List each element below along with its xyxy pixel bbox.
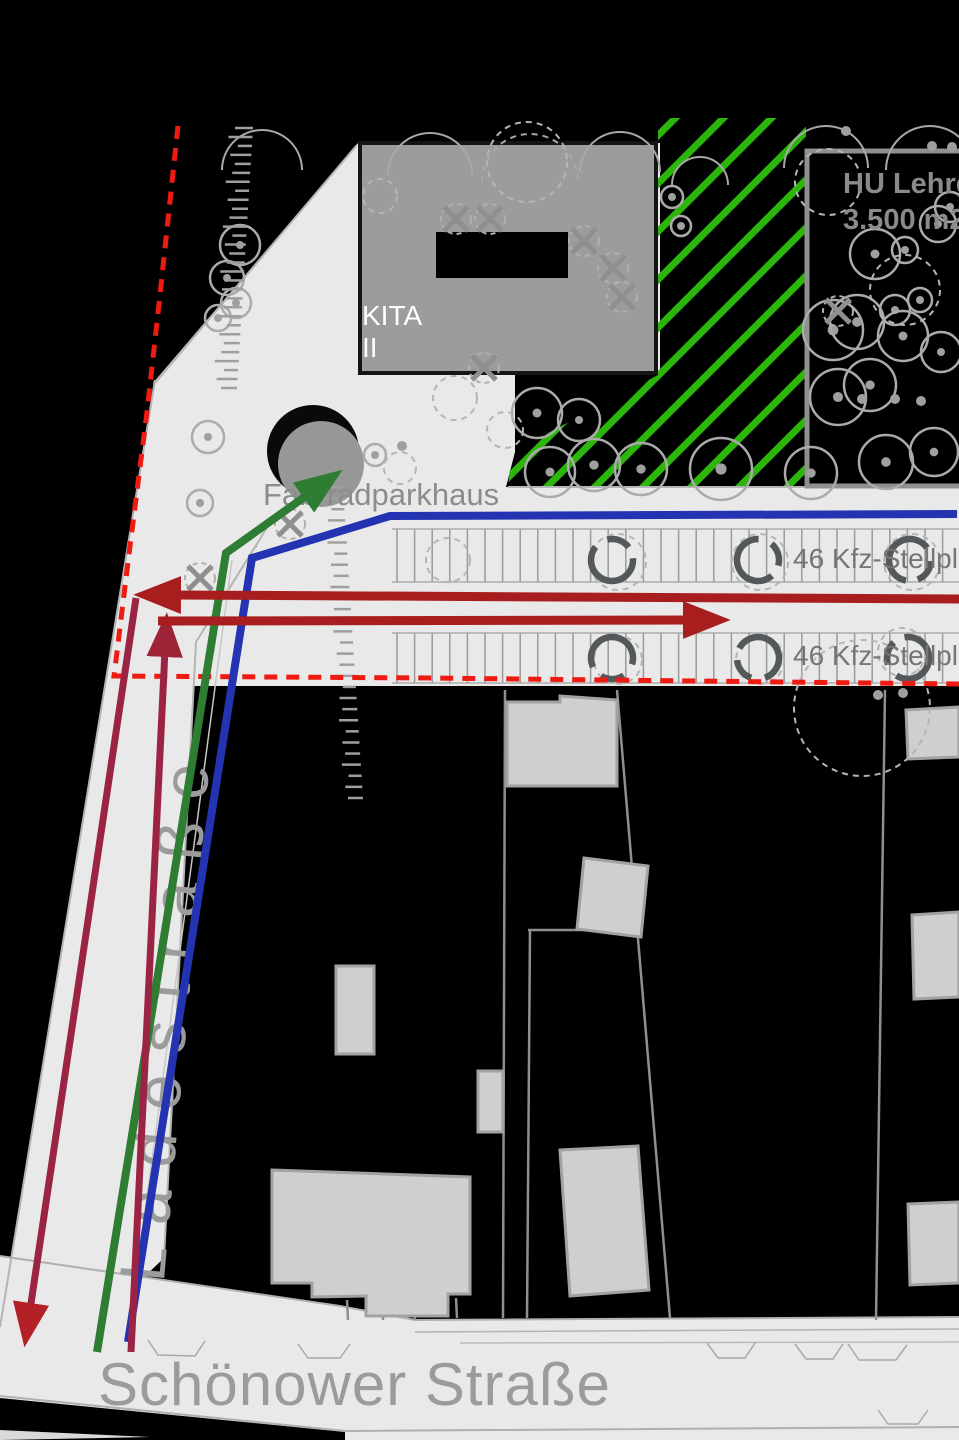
site-plan: HU Lehrg 3.500 m2 KITA II Fahrradparkhau…	[0, 0, 959, 1440]
route-parking-east	[158, 620, 692, 621]
traffic-routes-layer	[0, 0, 959, 1440]
parking-count-label-north: 46 Kfz-Stellpl	[793, 543, 958, 575]
parking-count-label-south: 46 Kfz-Stellpl	[793, 640, 958, 672]
kita-label-line1: KITA	[362, 300, 422, 332]
route-bus-blue	[128, 514, 957, 1342]
route-car-up	[131, 650, 165, 1352]
hu-lehrgarten-label-line1: HU Lehrg	[843, 166, 959, 202]
kita-building-label: KITA II	[362, 300, 422, 364]
route-parking-west	[172, 595, 959, 599]
hu-lehrgarten-area-value: 3.500 m2	[843, 202, 959, 238]
hu-lehrgarten-label: HU Lehrg 3.500 m2	[843, 166, 959, 239]
route-car-down	[30, 598, 136, 1310]
fahrradparkhaus-label: Fahrradparkhaus	[263, 477, 499, 513]
route-bike-green	[97, 493, 310, 1352]
plan-labels-layer: HU Lehrg 3.500 m2 KITA II Fahrradparkhau…	[0, 0, 959, 1440]
plan-linework-layer	[0, 0, 959, 1440]
ladestrasse-street-label: Ladestraße	[105, 739, 226, 1285]
schoenower-strasse-street-label: Schönower Straße	[98, 1350, 611, 1419]
kita-label-line2: II	[362, 332, 422, 364]
